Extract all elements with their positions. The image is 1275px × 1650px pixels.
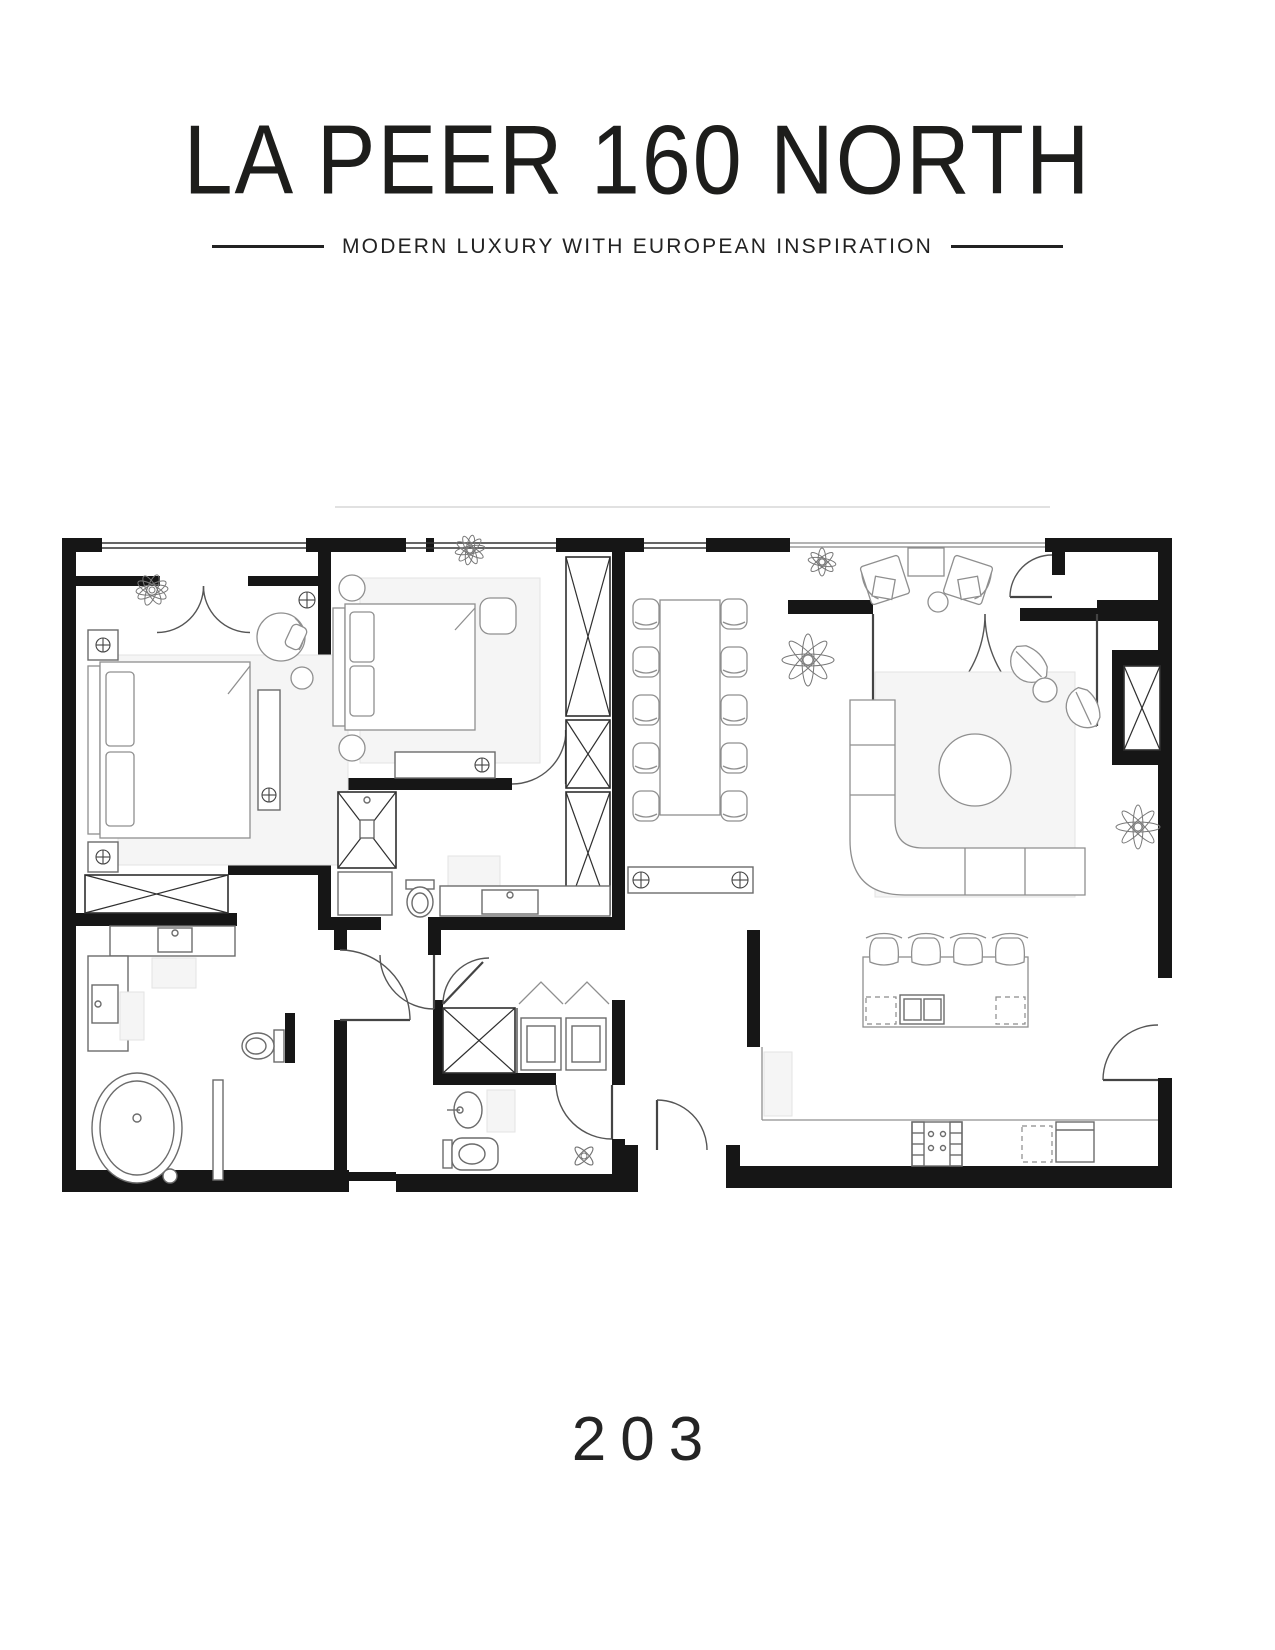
- pillow: [958, 576, 981, 599]
- screw-detail: [633, 872, 649, 888]
- kitchen-island: [863, 957, 1028, 1027]
- entry-door-arc: [1103, 1025, 1158, 1080]
- bifold-door: [519, 982, 563, 1004]
- round-table: [928, 592, 948, 612]
- dining-area: [633, 599, 747, 821]
- plant: [782, 634, 834, 686]
- bed-headboard: [88, 666, 100, 834]
- light-symbol: [262, 788, 276, 802]
- bath-mat: [448, 856, 500, 888]
- vanity: [487, 1090, 515, 1132]
- dishwasher: [1022, 1126, 1052, 1162]
- pouf: [480, 598, 516, 634]
- kitchen: [762, 934, 1158, 1167]
- light-symbol: [96, 638, 110, 652]
- toilet: [406, 880, 434, 917]
- toilet: [443, 1138, 498, 1170]
- shower-drain: [360, 820, 374, 838]
- plant: [808, 548, 837, 576]
- door-arc: [1010, 555, 1052, 597]
- cabinet: [338, 872, 392, 915]
- side-table: [1033, 678, 1057, 702]
- pillow: [872, 576, 895, 599]
- screw-detail: [732, 872, 748, 888]
- round-stool: [339, 735, 365, 761]
- walk-in-closet: [443, 1008, 515, 1073]
- shaft: [1124, 666, 1160, 750]
- page: { "page": { "background": "#ffffff" }, "…: [0, 0, 1275, 1650]
- powder-room: [443, 1090, 595, 1170]
- sink: [158, 928, 192, 952]
- plant: [573, 1145, 596, 1168]
- primary-bedroom: [88, 573, 348, 872]
- light-symbol: [475, 758, 489, 772]
- bed-headboard: [333, 608, 345, 726]
- laundry-closet: [517, 1008, 606, 1073]
- pillow: [350, 612, 374, 662]
- plant: [1116, 805, 1160, 849]
- floor-plan-svg: [0, 0, 1275, 1650]
- bedroom-2: [333, 535, 540, 778]
- unit-number: 203: [0, 1404, 1275, 1475]
- tray: [152, 958, 196, 988]
- pillow: [350, 666, 374, 716]
- towel-rail: [213, 1080, 223, 1180]
- pillow: [106, 752, 134, 826]
- primary-bathroom: [88, 926, 284, 1183]
- tub-faucet: [163, 1169, 177, 1183]
- pillow: [106, 672, 134, 746]
- sink: [92, 985, 118, 1023]
- cabinet: [1056, 1122, 1094, 1162]
- plant: [455, 535, 486, 566]
- living-room: [782, 634, 1160, 897]
- toilet: [242, 1030, 284, 1062]
- lounge-chair: [943, 555, 995, 606]
- range: [912, 1122, 962, 1166]
- lounge-chair: [859, 555, 911, 606]
- door-arc: [340, 950, 410, 1020]
- freestanding-tub: [92, 1073, 182, 1183]
- door-arc: [556, 1085, 612, 1139]
- hallway: [628, 867, 753, 893]
- stool: [120, 992, 144, 1040]
- round-stool: [339, 575, 365, 601]
- round-coffee-table: [939, 734, 1011, 806]
- light-symbol: [96, 850, 110, 864]
- side-table: [908, 548, 944, 576]
- door-arc: [204, 586, 251, 633]
- door-arc: [657, 1100, 707, 1150]
- light-symbol: [299, 592, 315, 608]
- tall-cabinet: [764, 1052, 792, 1116]
- sink: [482, 890, 538, 914]
- dining-table: [660, 600, 720, 815]
- side-table: [291, 667, 313, 689]
- bifold-door: [565, 982, 609, 1004]
